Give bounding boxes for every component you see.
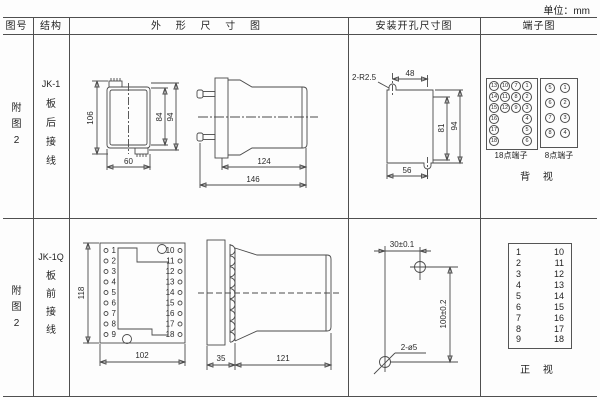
row2-model: JK-1Q	[33, 249, 69, 265]
dim-146: 146	[200, 143, 306, 188]
svg-text:9: 9	[112, 330, 117, 339]
terminal-pair: 211	[516, 258, 564, 268]
svg-text:6: 6	[112, 299, 117, 308]
terminal-pin: 17	[489, 125, 499, 135]
svg-text:18: 18	[166, 330, 175, 339]
outline-drawing-jk1: 106 84 94 60 124	[69, 33, 348, 216]
terminal-pair: 514	[516, 291, 564, 301]
terminal-pin: 8	[511, 92, 521, 102]
terminal-pin: 10	[500, 81, 510, 91]
svg-text:94: 94	[450, 121, 459, 130]
label-18pt: 18点端子	[482, 150, 540, 161]
terminal-pair: 817	[516, 324, 564, 334]
dim-102: 102	[100, 344, 185, 366]
header-outline: 外 形 尺 寸 图	[69, 20, 348, 33]
svg-text:2-ø5: 2-ø5	[401, 343, 418, 352]
terminal-pair: 615	[516, 302, 564, 312]
terminal-pin: 11	[500, 92, 510, 102]
terminal-pin: 4	[560, 128, 570, 138]
terminal-pair: 716	[516, 313, 564, 323]
terminal-pin: 3	[560, 113, 570, 123]
terminal-pin: 5	[522, 125, 532, 135]
terminal-pair: 413	[516, 280, 564, 290]
terminal-pin: 1	[560, 83, 570, 93]
row2-structure: JK-1Q 板 前 接 线	[33, 249, 69, 340]
unit-label: 单位：mm	[498, 2, 590, 17]
row1-fig-no: 附 图 2	[0, 101, 33, 149]
terminal-pair: 918	[516, 334, 564, 344]
svg-text:106: 106	[86, 111, 95, 125]
svg-text:94: 94	[166, 112, 175, 121]
terminal-pin: 7	[511, 81, 521, 91]
svg-text:121: 121	[276, 354, 290, 363]
svg-text:4: 4	[112, 278, 117, 287]
svg-text:124: 124	[257, 157, 271, 166]
side-view-jk1	[197, 78, 318, 158]
row1-model: JK-1	[33, 76, 69, 92]
terminal-pin: 9	[511, 103, 521, 113]
cutout-outline	[387, 73, 433, 180]
svg-text:56: 56	[403, 166, 412, 175]
header-mounting: 安装开孔尺寸图	[348, 20, 480, 33]
dim-56: 56	[387, 164, 428, 179]
svg-text:8: 8	[112, 320, 117, 329]
terminal-pin: 13	[489, 81, 499, 91]
svg-text:102: 102	[135, 351, 149, 360]
terminal-pin: 6	[522, 136, 532, 146]
terminal-pin: 14	[489, 92, 499, 102]
front-terminals-left: 1 2 3 4 5 6 7 8 9	[104, 246, 117, 339]
col-divider-4	[480, 17, 481, 397]
svg-text:146: 146	[246, 175, 260, 184]
svg-text:2-R2.5: 2-R2.5	[352, 73, 377, 82]
terminal-pin: 3	[522, 103, 532, 113]
terminal-pin: 2	[560, 98, 570, 108]
front-terminals-right: 10 11 12 13 14 15 16 17 18	[166, 246, 182, 339]
header-terminal: 端子图	[480, 20, 598, 33]
dim-121: 121	[235, 333, 331, 370]
row2-fig-no: 附 图 2	[0, 284, 33, 332]
table-bottom-border	[3, 396, 597, 397]
dim-48: 48	[393, 69, 428, 87]
svg-text:48: 48	[406, 69, 415, 78]
dim-35: 35	[207, 343, 235, 370]
terminal-pin: 12	[500, 103, 510, 113]
svg-text:17: 17	[166, 320, 175, 329]
svg-text:16: 16	[166, 309, 175, 318]
front-view-jk1	[107, 78, 150, 157]
svg-text:30±0.1: 30±0.1	[390, 240, 415, 249]
terminal-pin: 16	[489, 114, 499, 124]
svg-text:13: 13	[166, 278, 175, 287]
dim-94: 94	[149, 83, 179, 150]
outline-drawing-jk1q: 1 2 3 4 5 6 7 8 9 10 11 12 13 14 15 16 1…	[69, 210, 348, 396]
svg-text:10: 10	[166, 246, 175, 255]
dim-81: 81	[433, 97, 450, 160]
svg-text:60: 60	[124, 157, 133, 166]
mounting-drawing-jk1: 2-R2.5 48 81 94 56	[348, 33, 480, 216]
svg-text:100±0.2: 100±0.2	[439, 299, 448, 328]
dim-30: 30±0.1	[374, 240, 431, 372]
label-8pt: 8点端子	[541, 150, 577, 161]
front-view-jk1q: 1 2 3 4 5 6 7 8 9 10 11 12 13 14 15 16 1…	[100, 243, 185, 344]
label-hole-dia: 2-ø5	[374, 343, 426, 374]
dim-100: 100±0.2	[439, 267, 450, 362]
svg-text:12: 12	[166, 267, 175, 276]
terminal-pair: 312	[516, 269, 564, 279]
terminal-pin: 1	[522, 81, 532, 91]
svg-text:7: 7	[112, 309, 117, 318]
terminal-pin: 8	[545, 128, 555, 138]
dim-106: 106	[86, 81, 108, 154]
terminal-pin: 2	[522, 92, 532, 102]
terminal-pin: 6	[545, 98, 555, 108]
terminal-list-box: 110 211 312 413 514 615 716 817 918	[508, 243, 572, 349]
mounting-drawing-jk1q: 30±0.1 100±0.2 2-ø5	[348, 210, 480, 396]
svg-text:11: 11	[166, 257, 175, 266]
terminal-pin: 15	[489, 103, 499, 113]
svg-text:2: 2	[112, 257, 117, 266]
terminal-pin: 18	[489, 136, 499, 146]
header-structure: 结构	[33, 20, 69, 33]
relay-datasheet-page: 单位：mm 图号 结构 外 形 尺 寸 图 安装开孔尺寸图 端子图 附 图 2 …	[0, 0, 600, 400]
svg-text:81: 81	[437, 123, 446, 132]
svg-text:3: 3	[112, 267, 117, 276]
svg-text:118: 118	[77, 286, 86, 299]
header-fig-no: 图号	[0, 20, 33, 33]
dim-118: 118	[77, 243, 99, 343]
row2-view-label: 正 视	[480, 361, 598, 376]
dim-124: 124	[222, 148, 306, 188]
svg-text:15: 15	[166, 299, 175, 308]
table-top-border	[3, 17, 597, 18]
row1-structure: JK-1 板 后 接 线	[33, 76, 69, 171]
terminal-pin: 7	[545, 113, 555, 123]
svg-text:35: 35	[217, 354, 226, 363]
row1-view-label: 背 视	[480, 168, 598, 183]
terminal-pin: 5	[545, 83, 555, 93]
svg-text:1: 1	[112, 246, 117, 255]
terminal-pin: 4	[522, 114, 532, 124]
col-divider-1	[33, 17, 34, 397]
svg-text:84: 84	[155, 112, 164, 121]
side-view-jk1q	[198, 240, 342, 345]
svg-text:14: 14	[166, 288, 175, 297]
terminal-pair: 110	[516, 247, 564, 257]
label-slot-radius: 2-R2.5	[352, 73, 389, 88]
dim-60: 60	[107, 149, 150, 170]
svg-text:5: 5	[112, 288, 117, 297]
